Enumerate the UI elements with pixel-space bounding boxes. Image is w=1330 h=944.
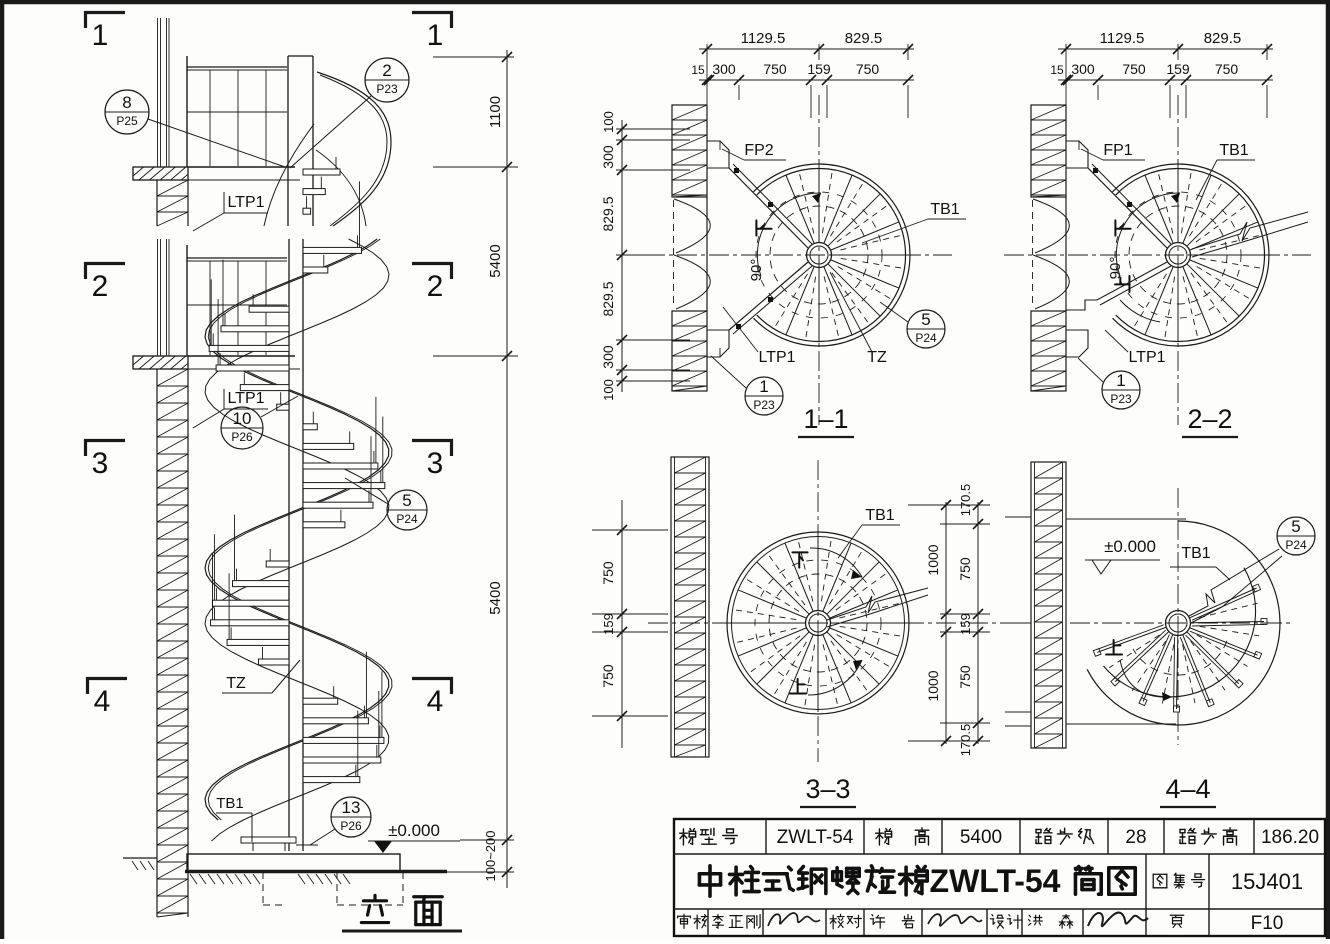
svg-text:8: 8 <box>122 93 131 112</box>
svg-text:4: 4 <box>427 685 444 718</box>
svg-text:LTP1: LTP1 <box>227 390 264 407</box>
svg-text:TB1: TB1 <box>216 795 244 812</box>
svg-text:159: 159 <box>1166 61 1190 77</box>
svg-text:15: 15 <box>691 63 705 77</box>
svg-text:P23: P23 <box>1110 392 1132 406</box>
svg-text:1000: 1000 <box>925 544 941 575</box>
svg-text:3: 3 <box>92 447 109 480</box>
svg-text:750: 750 <box>856 61 880 77</box>
svg-text:300: 300 <box>600 145 616 169</box>
svg-text:5400: 5400 <box>487 581 504 614</box>
svg-text:10: 10 <box>233 409 252 428</box>
svg-text:15J401: 15J401 <box>1231 869 1303 894</box>
svg-text:186.20: 186.20 <box>1261 827 1319 848</box>
svg-text:159: 159 <box>807 61 831 77</box>
svg-text:2: 2 <box>92 270 109 303</box>
svg-text:1: 1 <box>1116 371 1125 390</box>
svg-text:750: 750 <box>957 665 973 689</box>
svg-text:4–4: 4–4 <box>1165 774 1210 804</box>
svg-text:1000: 1000 <box>925 670 941 701</box>
svg-text:1: 1 <box>92 19 109 52</box>
svg-text:P24: P24 <box>1285 538 1307 552</box>
svg-text:3: 3 <box>427 447 444 480</box>
svg-text:159: 159 <box>958 613 973 635</box>
svg-text:P23: P23 <box>753 398 775 412</box>
svg-text:13: 13 <box>342 798 361 817</box>
svg-text:159: 159 <box>601 613 616 635</box>
svg-text:1100: 1100 <box>487 96 504 128</box>
svg-text:TB1: TB1 <box>930 201 959 218</box>
svg-text:750: 750 <box>600 664 616 688</box>
svg-text:FP2: FP2 <box>744 142 773 159</box>
svg-text:P24: P24 <box>915 331 937 345</box>
svg-text:300: 300 <box>1071 61 1095 77</box>
svg-text:2–2: 2–2 <box>1187 404 1232 434</box>
svg-text:TB1: TB1 <box>865 507 894 524</box>
svg-text:750: 750 <box>1215 61 1239 77</box>
svg-text:750: 750 <box>1122 61 1146 77</box>
svg-text:5: 5 <box>402 491 411 510</box>
svg-text:100~200: 100~200 <box>483 831 498 882</box>
svg-text:300: 300 <box>712 61 736 77</box>
svg-text:TB1: TB1 <box>1181 545 1210 562</box>
svg-text:LTP1: LTP1 <box>758 349 795 366</box>
svg-text:1–1: 1–1 <box>803 404 848 434</box>
svg-text:P26: P26 <box>340 819 362 833</box>
svg-text:P23: P23 <box>376 82 398 96</box>
svg-text:170.5: 170.5 <box>958 484 973 517</box>
svg-text:2: 2 <box>382 61 391 80</box>
svg-text:750: 750 <box>957 557 973 581</box>
svg-text:P24: P24 <box>396 512 418 526</box>
svg-text:1129.5: 1129.5 <box>1100 30 1145 47</box>
svg-text:5400: 5400 <box>960 827 1002 848</box>
svg-text:15: 15 <box>1050 63 1064 77</box>
svg-text:5: 5 <box>921 310 930 329</box>
svg-text:90°: 90° <box>748 259 765 282</box>
svg-text:TZ: TZ <box>226 675 246 692</box>
svg-text:LTP1: LTP1 <box>227 194 264 211</box>
svg-text:TB1: TB1 <box>1219 142 1248 159</box>
svg-text:750: 750 <box>600 561 616 585</box>
svg-text:829.5: 829.5 <box>845 30 883 47</box>
svg-text:3–3: 3–3 <box>805 774 850 804</box>
svg-text:2: 2 <box>427 270 444 303</box>
svg-text:300: 300 <box>600 345 616 369</box>
svg-text:170.5: 170.5 <box>958 724 973 757</box>
svg-text:100: 100 <box>601 379 616 401</box>
svg-text:1: 1 <box>427 19 444 52</box>
svg-text:ZWLT-54: ZWLT-54 <box>930 863 1061 899</box>
svg-text:750: 750 <box>763 61 787 77</box>
svg-text:FP1: FP1 <box>1103 142 1132 159</box>
svg-text:±0.000: ±0.000 <box>1104 537 1156 556</box>
svg-text:829.5: 829.5 <box>1204 30 1242 47</box>
svg-text:4: 4 <box>94 685 111 718</box>
svg-text:LTP1: LTP1 <box>1128 349 1165 366</box>
svg-text:100: 100 <box>601 111 616 133</box>
svg-text:±0.000: ±0.000 <box>388 821 440 840</box>
svg-text:1: 1 <box>759 377 768 396</box>
svg-text:F10: F10 <box>1251 913 1284 934</box>
svg-text:5400: 5400 <box>487 244 504 277</box>
svg-text:1129.5: 1129.5 <box>741 30 786 47</box>
svg-text:90°: 90° <box>1107 257 1124 280</box>
svg-text:829.5: 829.5 <box>600 196 616 231</box>
svg-text:28: 28 <box>1125 827 1146 848</box>
svg-text:ZWLT-54: ZWLT-54 <box>777 827 854 848</box>
svg-text:P26: P26 <box>231 430 253 444</box>
svg-text:5: 5 <box>1291 517 1300 536</box>
svg-text:829.5: 829.5 <box>600 281 616 316</box>
svg-text:P25: P25 <box>116 114 138 128</box>
svg-text:TZ: TZ <box>867 349 887 366</box>
